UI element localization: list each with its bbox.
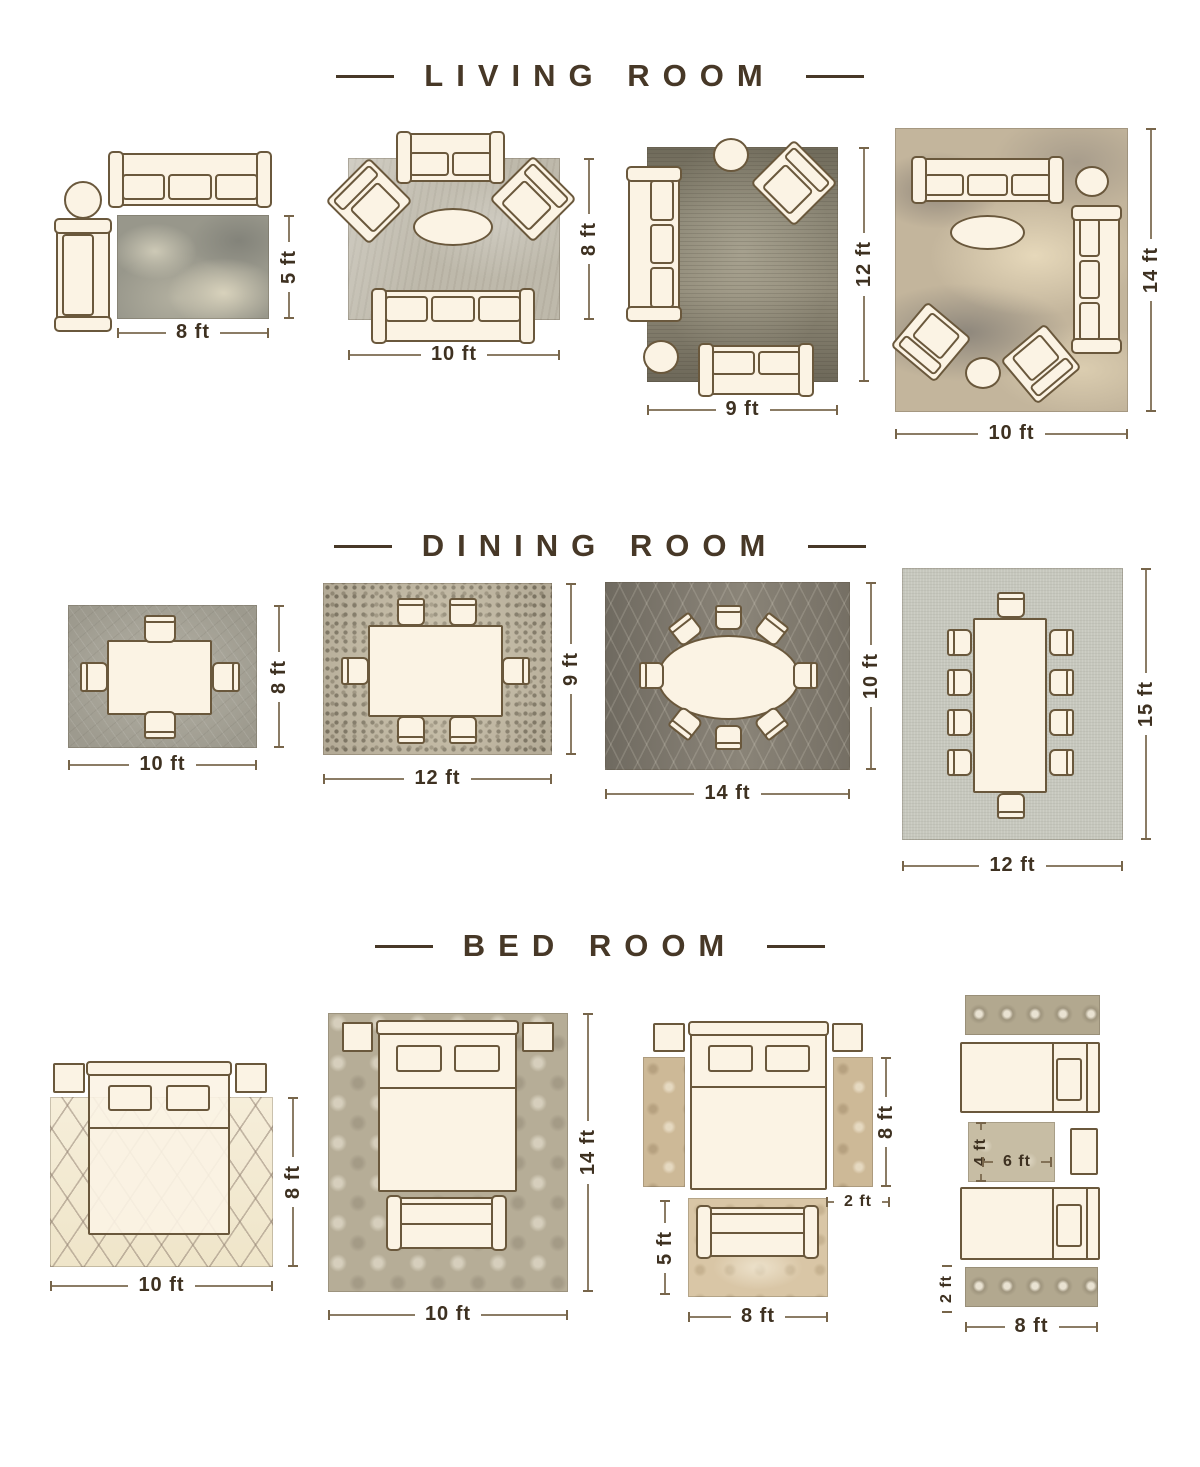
section-title-bedroom: BED ROOM bbox=[463, 928, 738, 964]
blanket-fold bbox=[1052, 1044, 1054, 1111]
living-layout-10x14: 14 ft 10 ft bbox=[885, 110, 1180, 445]
blanket-fold bbox=[89, 1127, 229, 1129]
dining-chair bbox=[449, 716, 477, 744]
headboard-line bbox=[1086, 1189, 1088, 1258]
dining-chair bbox=[639, 662, 664, 689]
dining-layout-12x9: 9 ft 12 ft bbox=[315, 575, 580, 790]
width-dimension: 12 ft bbox=[323, 767, 552, 790]
sofa-arm bbox=[803, 1205, 819, 1259]
width-dimension: 14 ft bbox=[605, 782, 850, 805]
rug-height-dimension: 5 ft bbox=[654, 1200, 676, 1295]
mid-rug-height-dimension: 4 ft bbox=[970, 1122, 992, 1182]
twin-bed bbox=[960, 1042, 1100, 1113]
width-dimension: 8 ft bbox=[117, 321, 269, 344]
nightstand bbox=[832, 1023, 863, 1052]
chaise-cushion bbox=[62, 234, 94, 316]
pillow bbox=[1056, 1058, 1082, 1101]
dining-chair bbox=[449, 598, 477, 626]
round-side-table bbox=[64, 181, 102, 219]
headboard bbox=[86, 1061, 232, 1076]
title-dash-right bbox=[808, 545, 866, 548]
round-ottoman bbox=[643, 340, 679, 374]
loveseat-arm bbox=[396, 131, 412, 184]
bench-arm bbox=[386, 1195, 402, 1251]
nightstand bbox=[53, 1063, 85, 1093]
section-title-living: LIVING ROOM bbox=[424, 58, 775, 94]
width-dimension: 10 ft bbox=[895, 422, 1128, 445]
title-dash-left bbox=[334, 545, 392, 548]
dining-chair bbox=[1049, 669, 1074, 696]
dining-chair bbox=[212, 662, 240, 692]
height-dimension: 14 ft bbox=[577, 1013, 599, 1292]
bedroom-layout-10x14: 14 ft 10 ft bbox=[325, 1005, 595, 1330]
dining-table bbox=[973, 618, 1047, 793]
pillow bbox=[708, 1045, 753, 1072]
dining-chair bbox=[997, 793, 1025, 819]
sofa-arm bbox=[626, 306, 682, 322]
nightstand bbox=[1070, 1128, 1098, 1175]
round-ottoman bbox=[965, 357, 1001, 389]
sofa-arm bbox=[108, 151, 124, 208]
mid-rug-width-dimension: 6 ft bbox=[982, 1153, 1052, 1171]
dining-chair bbox=[502, 657, 530, 685]
dining-table bbox=[107, 640, 212, 715]
blanket-fold bbox=[1052, 1189, 1054, 1258]
nightstand bbox=[653, 1023, 685, 1052]
dining-layout-12x15: 15 ft 12 ft bbox=[895, 560, 1160, 885]
sofa-cushion bbox=[708, 1213, 807, 1234]
nightstand bbox=[235, 1063, 267, 1093]
headboard bbox=[376, 1020, 519, 1035]
sofa-arm bbox=[371, 288, 387, 344]
dining-chair bbox=[947, 709, 972, 736]
oval-dining-table bbox=[657, 635, 800, 720]
dining-chair bbox=[341, 657, 369, 685]
sofa bbox=[373, 290, 533, 342]
pillow bbox=[108, 1085, 152, 1111]
sofa-arm bbox=[626, 166, 682, 182]
height-dimension: 8 ft bbox=[268, 605, 290, 748]
dining-chair bbox=[80, 662, 108, 692]
rug-8x5 bbox=[117, 215, 269, 319]
dining-chair bbox=[1049, 749, 1074, 776]
dining-chair bbox=[144, 711, 176, 739]
dining-chair bbox=[144, 615, 176, 643]
pillow bbox=[765, 1045, 810, 1072]
dining-layout-14x10: 10 ft 14 ft bbox=[600, 575, 880, 805]
runner-rug-left bbox=[643, 1057, 685, 1187]
dining-chair bbox=[947, 669, 972, 696]
pillow bbox=[166, 1085, 210, 1111]
runner-width-dimension: 2 ft bbox=[826, 1193, 890, 1211]
round-side-table bbox=[1075, 166, 1109, 197]
height-dimension: 15 ft bbox=[1135, 568, 1157, 840]
dining-chair bbox=[1049, 709, 1074, 736]
width-dimension: 10 ft bbox=[328, 1303, 568, 1326]
dim-label: 8 ft bbox=[176, 321, 210, 344]
bedroom-layout-10x8: 8 ft 10 ft bbox=[40, 1050, 305, 1300]
bed bbox=[690, 1023, 827, 1190]
dining-chair bbox=[397, 716, 425, 744]
chaise-arm bbox=[54, 218, 112, 234]
pillow bbox=[1056, 1204, 1082, 1247]
living-room-heading: LIVING ROOM bbox=[0, 58, 1200, 94]
living-layout-8x5: 5 ft 8 ft bbox=[50, 135, 310, 350]
dining-chair bbox=[715, 605, 742, 630]
sofa-arm bbox=[696, 1205, 712, 1259]
dining-table bbox=[368, 625, 503, 717]
pillow bbox=[454, 1045, 500, 1072]
loveseat-cushions bbox=[711, 351, 801, 375]
twin-bed bbox=[960, 1187, 1100, 1260]
rug-width-dimension: 8 ft bbox=[688, 1305, 828, 1328]
nightstand bbox=[342, 1022, 373, 1052]
dining-layout-10x8: 8 ft 10 ft bbox=[60, 595, 295, 780]
loveseat-arm bbox=[489, 131, 505, 184]
width-dimension: 9 ft bbox=[647, 398, 838, 421]
bed-room-heading: BED ROOM bbox=[0, 928, 1200, 964]
dining-chair bbox=[947, 629, 972, 656]
title-dash-left bbox=[375, 945, 433, 948]
rug-size-guide: LIVING ROOM 5 ft 8 ft bbox=[0, 0, 1200, 1467]
bench-cushion bbox=[398, 1203, 495, 1225]
sofa-cushions bbox=[385, 296, 521, 322]
round-side-table bbox=[713, 138, 749, 172]
loveseat-cushions bbox=[409, 152, 492, 176]
loveseat bbox=[700, 345, 812, 395]
runner-rug-top bbox=[965, 995, 1100, 1035]
height-dimension: 5 ft bbox=[278, 215, 300, 319]
living-layout-10x8: 8 ft 10 ft bbox=[330, 125, 610, 370]
title-dash-right bbox=[767, 945, 825, 948]
sofa bbox=[913, 158, 1062, 202]
sofa-arm bbox=[1048, 156, 1064, 204]
blanket-fold bbox=[691, 1086, 826, 1088]
runner-height-dimension: 2 ft bbox=[936, 1265, 958, 1309]
oval-coffee-table bbox=[413, 208, 493, 246]
sofa-arm bbox=[519, 288, 535, 344]
dining-chair bbox=[1049, 629, 1074, 656]
headboard bbox=[688, 1021, 829, 1036]
width-dimension: 12 ft bbox=[902, 854, 1123, 877]
height-dimension: 12 ft bbox=[853, 147, 875, 382]
loveseat-arm bbox=[698, 343, 714, 397]
bed bbox=[378, 1022, 517, 1192]
dining-chair bbox=[997, 592, 1025, 618]
runner-rug-bottom bbox=[965, 1267, 1098, 1307]
sofa-cushions bbox=[122, 174, 258, 200]
loveseat bbox=[398, 133, 503, 182]
dining-chair bbox=[947, 749, 972, 776]
bed bbox=[88, 1063, 230, 1235]
dining-chair bbox=[715, 725, 742, 750]
oval-coffee-table bbox=[950, 215, 1025, 250]
nightstand bbox=[522, 1022, 554, 1052]
sofa-cushions bbox=[924, 174, 1051, 196]
sofa bbox=[698, 1207, 817, 1257]
bed-height-dimension: 8 ft bbox=[875, 1057, 897, 1187]
title-dash-left bbox=[336, 75, 394, 78]
chaise-arm bbox=[54, 316, 112, 332]
sofa-arm bbox=[1071, 205, 1122, 221]
sofa-arm bbox=[1071, 338, 1122, 354]
section-title-dining: DINING ROOM bbox=[422, 528, 779, 564]
dining-room-heading: DINING ROOM bbox=[0, 528, 1200, 564]
height-dimension: 8 ft bbox=[578, 158, 600, 320]
chaise bbox=[56, 220, 110, 330]
sofa bbox=[1073, 207, 1120, 352]
sofa-arm bbox=[256, 151, 272, 208]
loveseat-arm bbox=[798, 343, 814, 397]
bedroom-layout-twin-runners: 4 ft 6 ft 2 ft 8 ft bbox=[930, 985, 1175, 1345]
runner-rug-right bbox=[833, 1057, 873, 1187]
dining-chair bbox=[397, 598, 425, 626]
sofa-cushions bbox=[650, 180, 674, 308]
height-dimension: 14 ft bbox=[1140, 128, 1162, 412]
bench-arm bbox=[491, 1195, 507, 1251]
sofa-cushions bbox=[1079, 218, 1100, 341]
living-layout-9x12: 12 ft 9 ft bbox=[615, 130, 880, 425]
dining-chair bbox=[793, 662, 818, 689]
height-dimension: 8 ft bbox=[282, 1097, 304, 1267]
width-dimension: 10 ft bbox=[50, 1274, 273, 1297]
runner-width-dimension: 8 ft bbox=[965, 1315, 1098, 1338]
dim-label: 5 ft bbox=[278, 250, 301, 284]
sofa-arm bbox=[911, 156, 927, 204]
title-dash-right bbox=[806, 75, 864, 78]
blanket-fold bbox=[379, 1087, 516, 1089]
height-dimension: 10 ft bbox=[860, 582, 882, 770]
pillow bbox=[396, 1045, 442, 1072]
bench-sofa bbox=[388, 1197, 505, 1249]
width-dimension: 10 ft bbox=[348, 343, 560, 366]
width-dimension: 10 ft bbox=[68, 753, 257, 776]
bedroom-layout-runners: 8 ft 2 ft 5 ft 8 ft bbox=[640, 1015, 895, 1325]
headboard-line bbox=[1086, 1044, 1088, 1111]
sofa bbox=[628, 168, 680, 320]
sofa bbox=[110, 153, 270, 206]
height-dimension: 9 ft bbox=[560, 583, 582, 755]
